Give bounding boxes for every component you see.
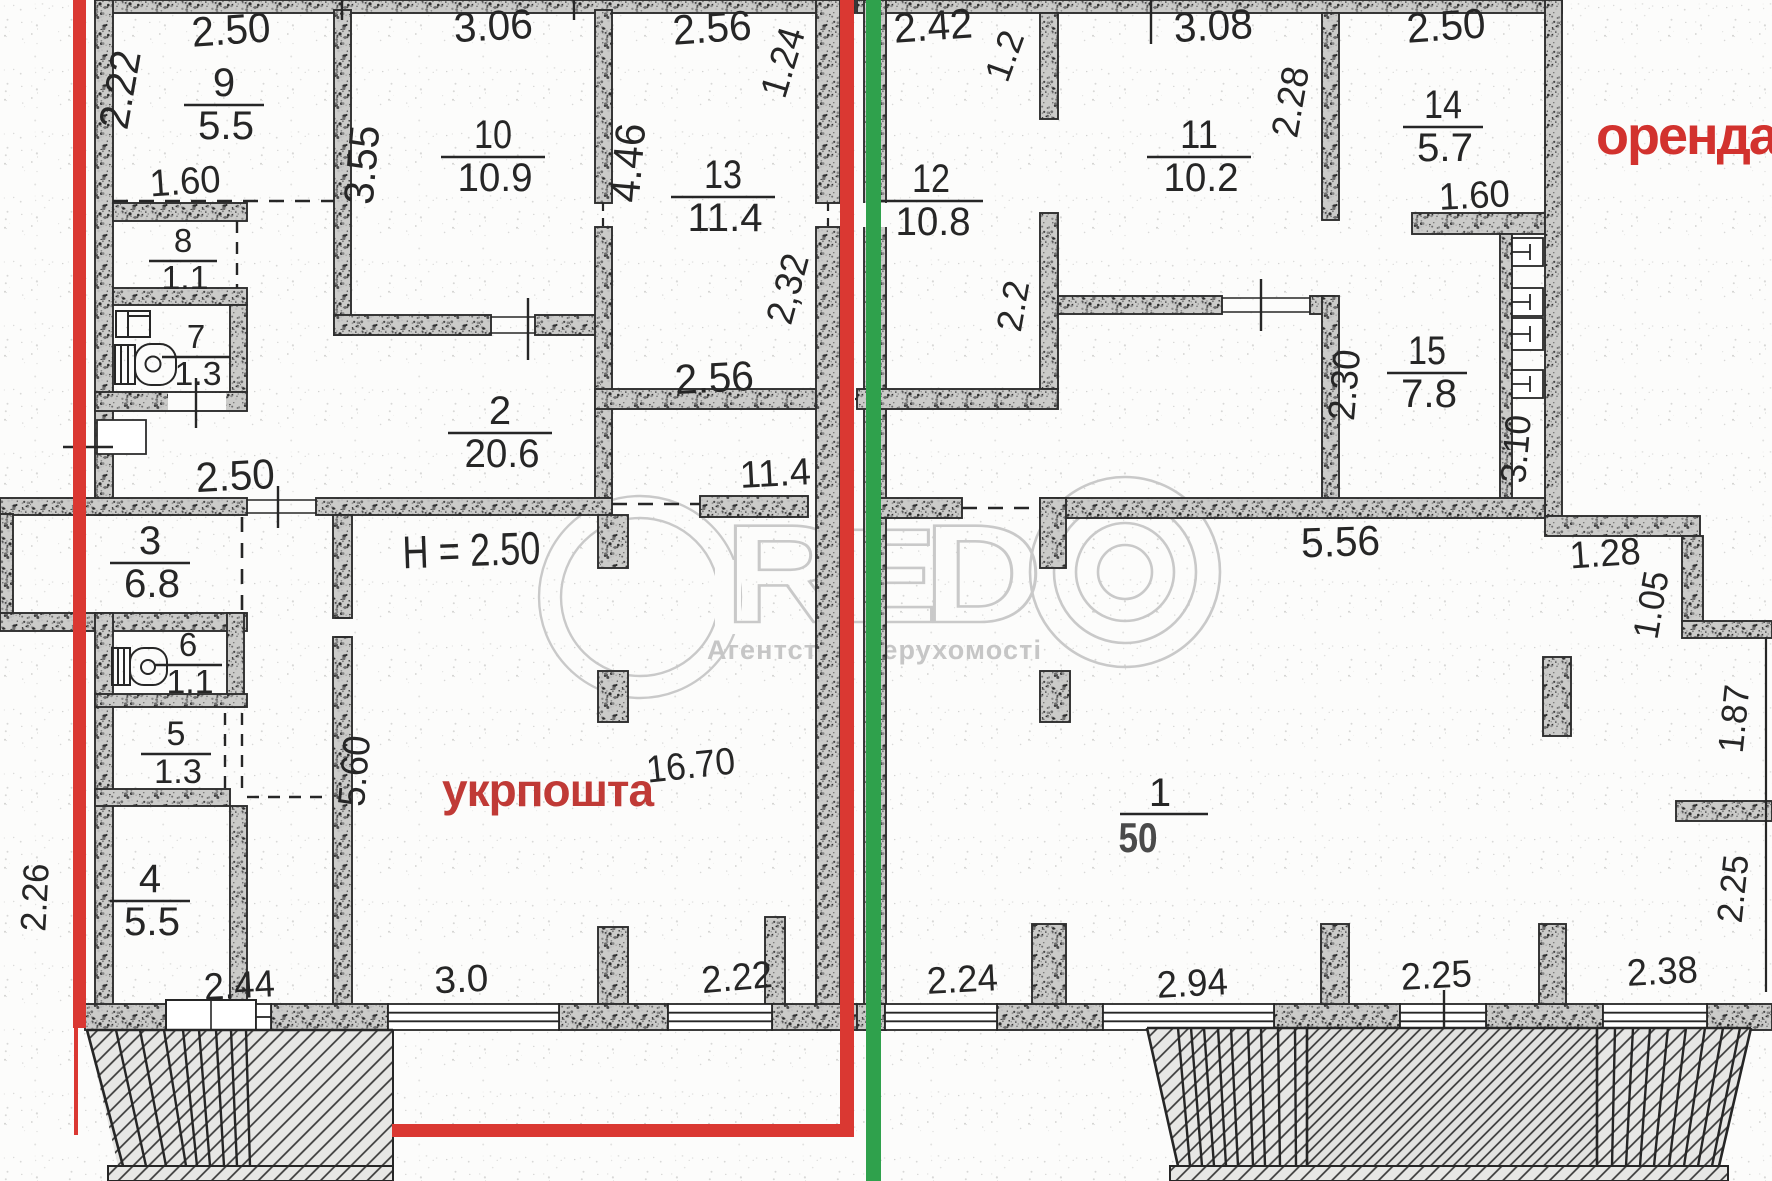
svg-text:10.9: 10.9	[458, 156, 533, 200]
svg-text:5.7: 5.7	[1417, 126, 1473, 170]
svg-text:5.5: 5.5	[198, 104, 254, 148]
svg-text:1.87: 1.87	[1710, 683, 1758, 755]
svg-text:1.60: 1.60	[1438, 173, 1511, 219]
svg-text:2.56: 2.56	[674, 352, 755, 403]
svg-text:50: 50	[1119, 814, 1158, 861]
svg-text:14: 14	[1424, 83, 1462, 127]
svg-text:2.25: 2.25	[1709, 853, 1757, 925]
svg-text:3.06: 3.06	[453, 0, 534, 51]
svg-text:2.22: 2.22	[700, 954, 774, 1002]
svg-text:укрпошта: укрпошта	[442, 764, 654, 816]
svg-text:2.50: 2.50	[195, 450, 276, 501]
svg-text:3.08: 3.08	[1173, 0, 1254, 51]
svg-text:5: 5	[167, 715, 186, 753]
svg-text:1.1: 1.1	[162, 259, 209, 296]
svg-text:2.50: 2.50	[1405, 0, 1487, 52]
svg-text:5.60: 5.60	[331, 734, 379, 808]
svg-text:5.5: 5.5	[124, 900, 180, 944]
svg-text:7.8: 7.8	[1401, 372, 1457, 416]
svg-text:13: 13	[704, 153, 742, 197]
svg-text:2.44: 2.44	[203, 963, 276, 1009]
svg-text:1.3: 1.3	[175, 355, 222, 392]
svg-text:11: 11	[1180, 113, 1218, 157]
svg-text:20.6: 20.6	[465, 432, 540, 476]
svg-text:15: 15	[1408, 329, 1446, 373]
svg-text:1.28: 1.28	[1568, 531, 1642, 578]
svg-text:2: 2	[489, 389, 511, 433]
svg-text:2.50: 2.50	[190, 3, 272, 55]
svg-text:6: 6	[179, 626, 197, 663]
svg-text:10.8: 10.8	[896, 200, 971, 244]
svg-text:1.3: 1.3	[154, 753, 202, 791]
svg-text:2.25: 2.25	[1400, 953, 1473, 999]
svg-text:7: 7	[187, 318, 205, 355]
svg-text:2.94: 2.94	[1156, 961, 1229, 1007]
svg-text:11.4: 11.4	[688, 196, 763, 240]
svg-text:оренда: оренда	[1596, 106, 1772, 166]
svg-text:11.4: 11.4	[739, 451, 812, 497]
svg-text:2.2: 2.2	[988, 277, 1037, 334]
svg-text:3.10: 3.10	[1492, 413, 1539, 484]
svg-text:D: D	[923, 496, 1042, 652]
svg-text:3.0: 3.0	[433, 958, 489, 1003]
svg-text:2.38: 2.38	[1626, 949, 1699, 995]
svg-text:2.56: 2.56	[671, 1, 753, 53]
svg-text:H = 2.50: H = 2.50	[402, 522, 542, 579]
svg-text:3.55: 3.55	[335, 123, 389, 206]
svg-text:1.1: 1.1	[167, 663, 214, 700]
svg-text:5.56: 5.56	[1300, 517, 1381, 567]
svg-text:3: 3	[139, 519, 161, 563]
svg-text:2.30: 2.30	[1321, 348, 1369, 422]
svg-text:4: 4	[139, 857, 161, 901]
svg-text:12: 12	[912, 157, 950, 201]
svg-text:2.26: 2.26	[12, 862, 57, 932]
svg-text:1: 1	[1149, 771, 1171, 815]
svg-text:4.46: 4.46	[601, 121, 655, 204]
svg-text:8: 8	[174, 222, 192, 259]
svg-text:6.8: 6.8	[124, 562, 180, 606]
svg-text:10.2: 10.2	[1164, 156, 1239, 200]
svg-text:10: 10	[474, 113, 512, 157]
svg-text:2.42: 2.42	[892, 0, 974, 52]
svg-text:9: 9	[213, 61, 235, 105]
svg-text:1.60: 1.60	[148, 159, 222, 206]
svg-text:2.24: 2.24	[926, 957, 999, 1003]
